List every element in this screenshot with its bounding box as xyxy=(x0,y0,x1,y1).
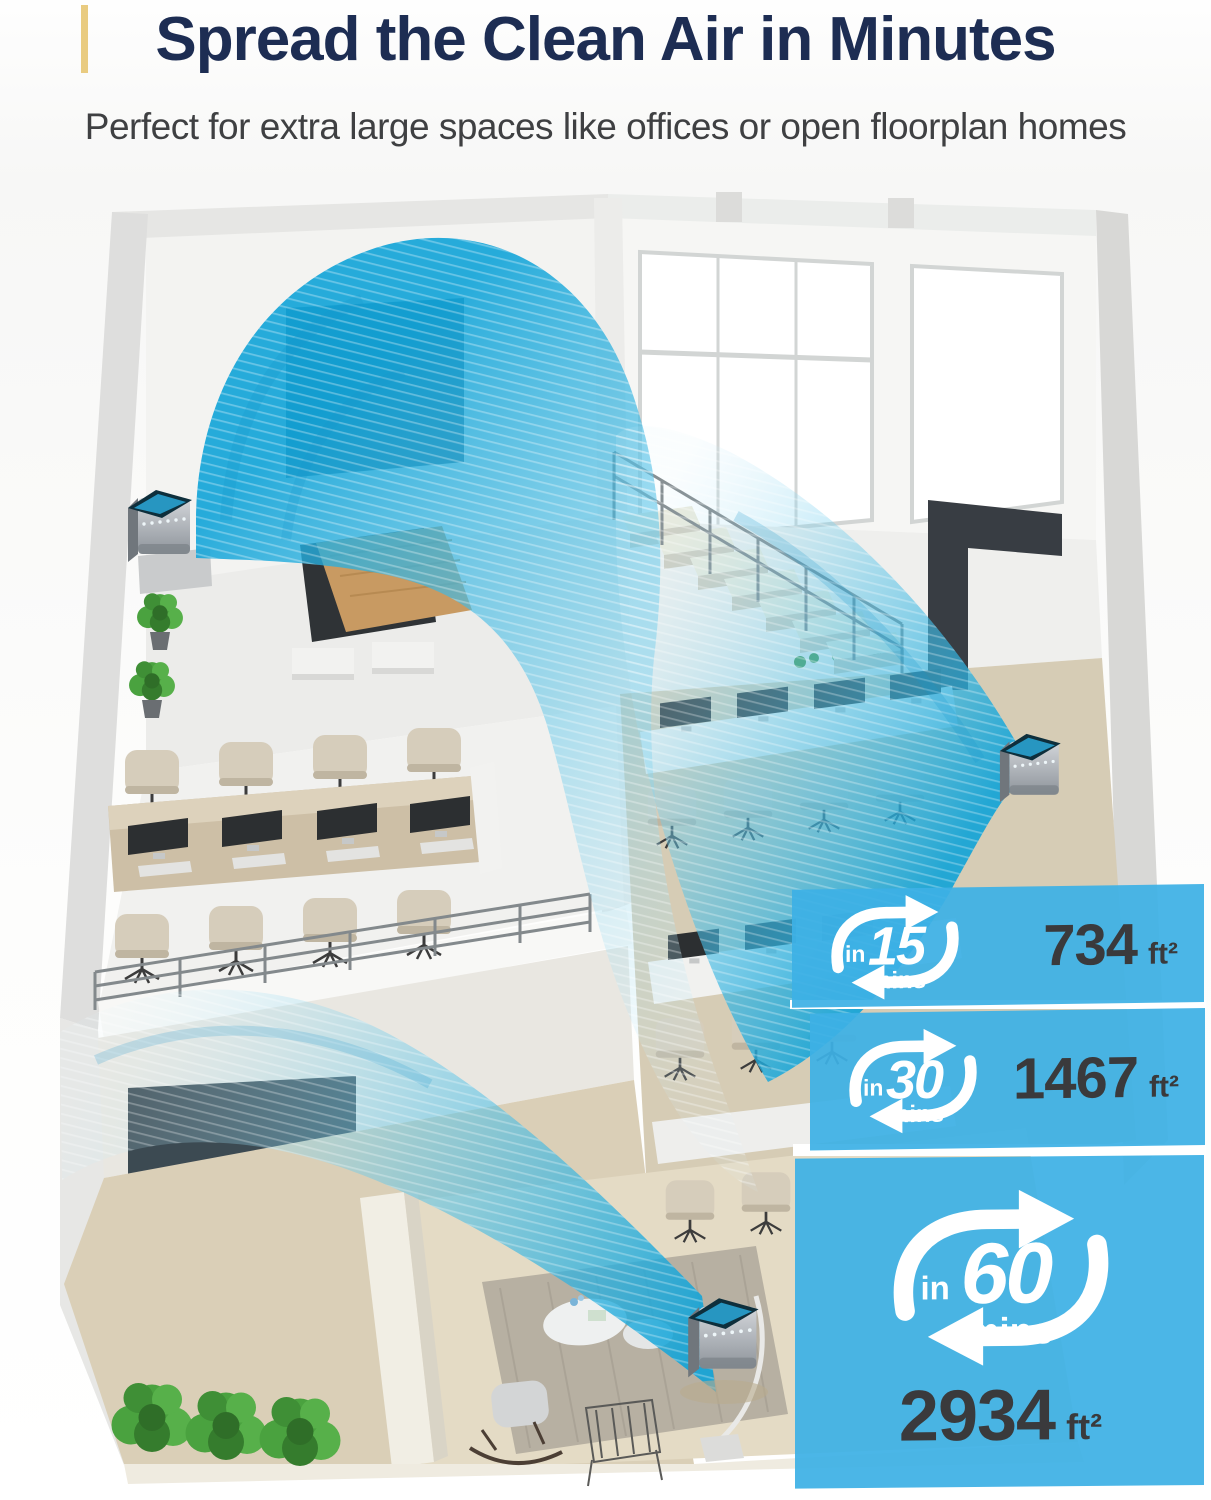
mins-label: mins xyxy=(888,1100,944,1129)
area-value: 734 xyxy=(1043,910,1137,978)
area-unit: ft² xyxy=(1066,1406,1102,1448)
air-purifier-2 xyxy=(1000,734,1061,802)
area-unit: ft² xyxy=(1149,1070,1179,1104)
page-title: Spread the Clean Air in Minutes xyxy=(0,4,1211,75)
area-value: 2934 xyxy=(899,1374,1055,1457)
coverage-panel-60min: in 60 mins 2934 ft² xyxy=(795,1155,1204,1489)
mins-label: mins xyxy=(967,1310,1053,1353)
coverage-area: 734 ft² xyxy=(1043,910,1178,979)
mins-label: mins xyxy=(870,967,926,996)
in-label: in xyxy=(863,1074,883,1101)
area-unit: ft² xyxy=(1148,937,1178,971)
cycle-arrows-icon: in 30 mins xyxy=(838,1026,988,1136)
cycle-arrows-icon: in 60 mins xyxy=(875,1186,1127,1370)
in-label: in xyxy=(921,1269,950,1307)
coverage-panel-15min: in 15 mins 734 ft² xyxy=(792,884,1204,1008)
coverage-area: 2934 ft² xyxy=(899,1374,1102,1458)
page-subtitle: Perfect for extra large spaces like offi… xyxy=(0,106,1211,148)
time-value: 60 xyxy=(961,1224,1051,1324)
air-purifier-3 xyxy=(680,1298,768,1404)
cycle-arrows-icon: in 15 mins xyxy=(820,892,970,1002)
area-value: 1467 xyxy=(1013,1044,1138,1113)
in-label: in xyxy=(845,941,865,968)
coverage-panel-30min: in 30 mins 1467 ft² xyxy=(810,1008,1205,1151)
coverage-area: 1467 ft² xyxy=(1013,1043,1179,1112)
air-purifier-1 xyxy=(128,490,192,562)
infographic-page: Spread the Clean Air in Minutes Perfect … xyxy=(0,0,1211,1500)
